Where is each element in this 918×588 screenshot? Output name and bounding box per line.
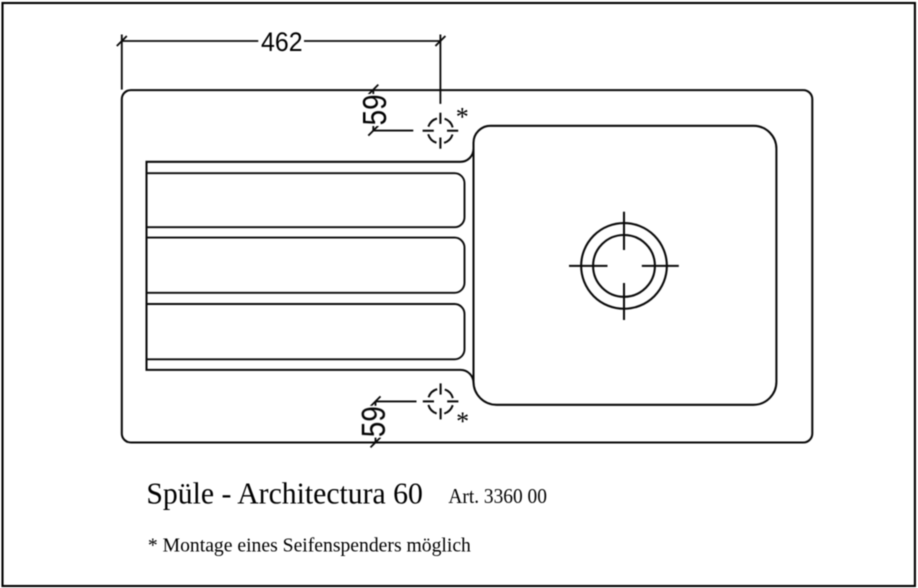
svg-text:Art. 3360 00: Art. 3360 00: [448, 484, 547, 508]
svg-text:*: *: [456, 407, 469, 436]
svg-text:462: 462: [261, 27, 303, 57]
svg-text:*: *: [456, 103, 469, 132]
svg-text:Spüle - Architectura 60: Spüle - Architectura 60: [146, 476, 423, 510]
svg-text:59: 59: [355, 406, 392, 437]
svg-text:* Montage eines Seifenspenders: * Montage eines Seifenspenders möglich: [148, 535, 471, 557]
svg-text:59: 59: [356, 94, 393, 125]
